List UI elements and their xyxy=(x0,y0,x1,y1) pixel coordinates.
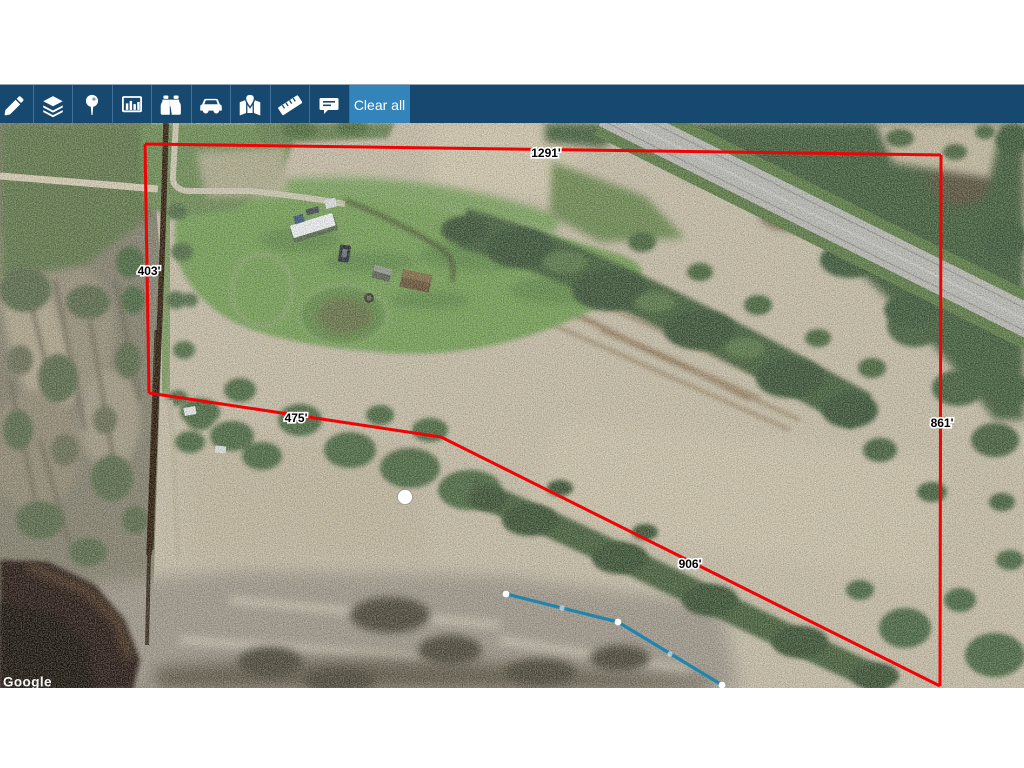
svg-text:906': 906' xyxy=(679,557,702,571)
svg-text:1291': 1291' xyxy=(531,146,561,160)
svg-text:403': 403' xyxy=(138,264,161,278)
svg-text:861': 861' xyxy=(931,416,954,430)
svg-text:475': 475' xyxy=(285,411,308,425)
svg-text:Google: Google xyxy=(3,675,52,689)
